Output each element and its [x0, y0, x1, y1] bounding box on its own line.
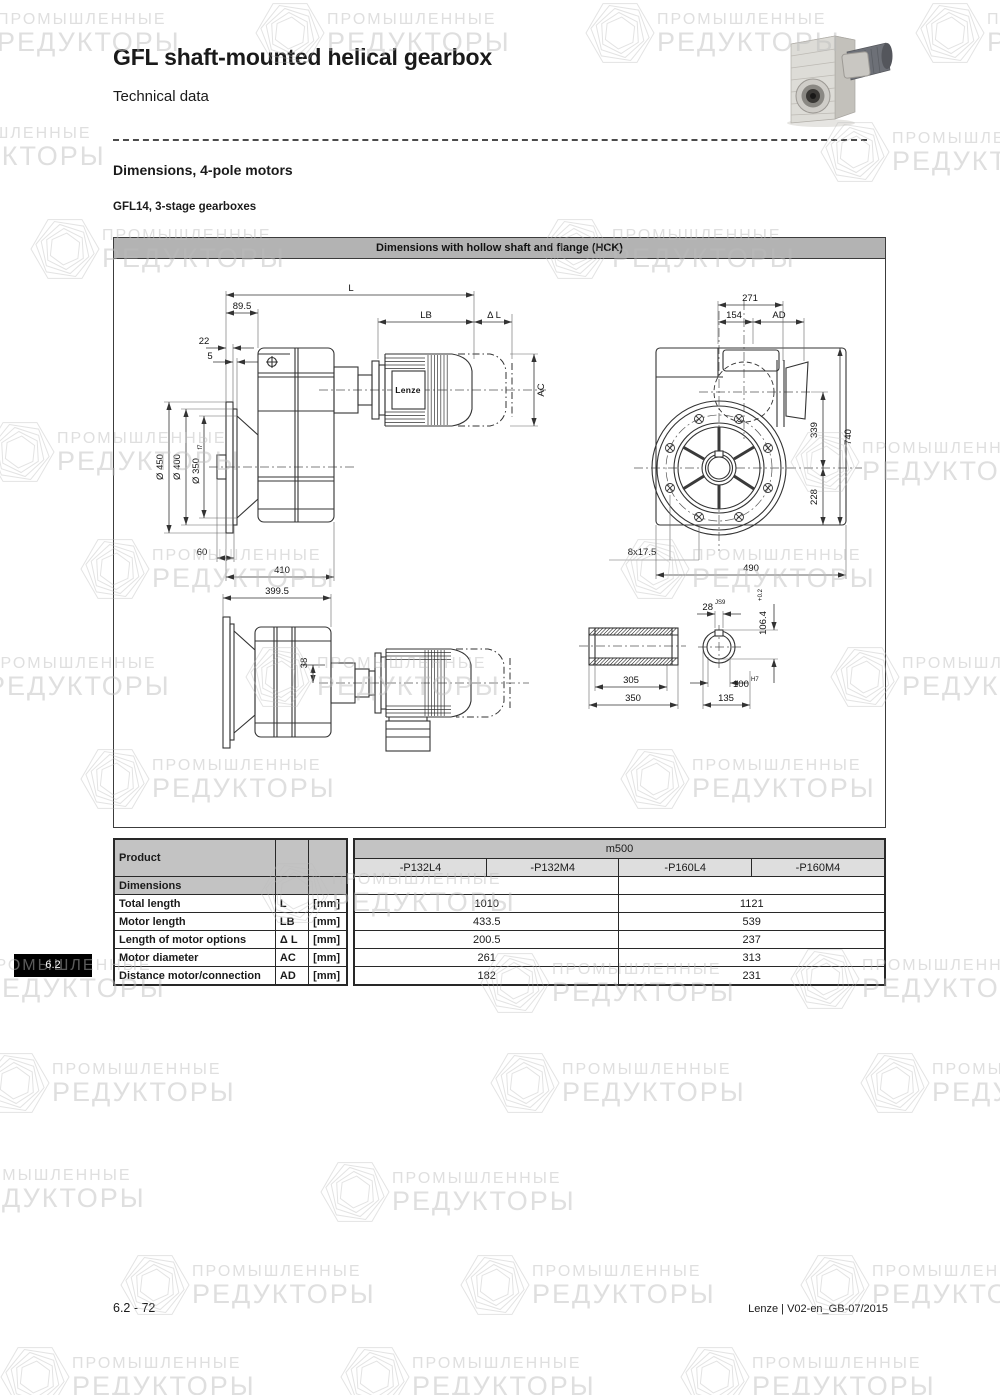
empty-cell — [275, 839, 308, 877]
page-subtitle: Technical data — [113, 88, 209, 105]
dashed-divider — [113, 139, 867, 141]
watermark: ПРОМЫШЛЕННЫЕРЕДУКТОРЫ — [0, 110, 106, 184]
table-row: -P132L4 -P132M4 -P160L4 -P160M4 — [354, 859, 885, 877]
dim-AC: AC — [536, 383, 547, 396]
value-cell: 1121 — [619, 895, 885, 913]
watermark: ПРОМЫШЛЕННЫЕРЕДУКТОРЫ — [340, 1340, 596, 1395]
row-label: Motor diameter — [114, 949, 275, 967]
col-header: -P132L4 — [354, 859, 486, 877]
table-row: 1010 1121 — [354, 895, 885, 913]
figure-box: Dimensions with hollow shaft and flange … — [113, 237, 886, 828]
dim-339: 339 — [809, 422, 820, 438]
dim-60: 60 — [197, 547, 208, 558]
dim-5: 5 — [207, 351, 212, 362]
col-header: -P160L4 — [619, 859, 751, 877]
dim-305: 305 — [623, 675, 639, 686]
row-unit: [mm] — [309, 949, 347, 967]
value-cell: 261 — [354, 949, 619, 967]
row-symbol: LB — [275, 913, 308, 931]
dim-dia450: Ø 450 — [155, 454, 166, 480]
row-symbol: AD — [275, 967, 308, 986]
watermark: ПРОМЫШЛЕННЫЕРЕДУКТОРЫ — [0, 1340, 256, 1395]
product-header-cell: Product — [114, 839, 275, 877]
dim-490: 490 — [743, 563, 759, 574]
table-row: Dimensions — [114, 877, 347, 895]
dim-350: 350 — [625, 693, 641, 704]
watermark: ПРОМЫШЛЕННЫЕРЕДУКТОРЫ — [120, 1248, 376, 1322]
value-cell: 313 — [619, 949, 885, 967]
table-row: 182 231 — [354, 967, 885, 986]
footer-page-number: 6.2 - 72 — [113, 1301, 155, 1315]
empty-cell — [619, 877, 885, 895]
dim-L: L — [348, 283, 353, 294]
dim-dia350: Ø 350 — [191, 458, 202, 484]
table-row: Motor diameter AC [mm] — [114, 949, 347, 967]
watermark: ПРОМЫШЛЕННЫЕРЕДУКТОРЫ — [915, 0, 1000, 70]
technical-drawing: L 89.5 LB Δ L 22 5 Ø 450 Ø 400 Ø 350 f7 … — [114, 259, 885, 827]
row-unit: [mm] — [309, 895, 347, 913]
row-label: Motor length — [114, 913, 275, 931]
empty-cell — [309, 839, 347, 877]
view-front — [652, 348, 846, 535]
col-header: -P160M4 — [751, 859, 885, 877]
motor-brand-label: Lenze — [395, 385, 421, 395]
subsection-heading: GFL14, 3-stage gearboxes — [113, 201, 256, 213]
dim-154: 154 — [726, 310, 742, 321]
dim-271: 271 — [742, 293, 758, 304]
figure-caption: Dimensions with hollow shaft and flange … — [114, 238, 885, 259]
dim-410: 410 — [274, 565, 290, 576]
table-row: Distance motor/connection AD [mm] — [114, 967, 347, 986]
section-label-cell: Dimensions — [114, 877, 275, 895]
dim-100: 100 — [733, 679, 749, 690]
dim-bolt-holes: 8x17.5 — [628, 547, 657, 558]
table-row: Total length L [mm] — [114, 895, 347, 913]
chapter-side-tab: 6.2 — [14, 954, 92, 977]
row-unit: [mm] — [309, 967, 347, 986]
watermark: ПРОМЫШЛЕННЫЕРЕДУКТОРЫ — [0, 1152, 146, 1226]
value-cell: 433.5 — [354, 913, 619, 931]
table-left-block: Product Dimensions Total length L [mm] M… — [113, 838, 348, 986]
dim-dia350-tol: f7 — [198, 444, 204, 450]
dim-89-5: 89.5 — [233, 301, 252, 312]
table-row: 433.5 539 — [354, 913, 885, 931]
table-row: Length of motor options Δ L [mm] — [114, 931, 347, 949]
watermark: ПРОМЫШЛЕННЫЕРЕДУКТОРЫ — [0, 1046, 236, 1120]
product-photo — [783, 22, 901, 133]
table-row: Motor length LB [mm] — [114, 913, 347, 931]
value-cell: 182 — [354, 967, 619, 986]
value-cell: 231 — [619, 967, 885, 986]
col-header: -P132M4 — [486, 859, 618, 877]
row-label: Distance motor/connection — [114, 967, 275, 986]
table-row: 200.5 237 — [354, 931, 885, 949]
dim-100-tol: H7 — [751, 677, 759, 683]
watermark: ПРОМЫШЛЕННЫЕРЕДУКТОРЫ — [460, 1248, 716, 1322]
footer-version: Lenze | V02-en_GB-07/2015 — [748, 1303, 888, 1315]
value-cell: 200.5 — [354, 931, 619, 949]
section-heading: Dimensions, 4-pole motors — [113, 162, 293, 178]
dim-28: 28 — [702, 602, 713, 613]
row-label: Length of motor options — [114, 931, 275, 949]
value-cell: 1010 — [354, 895, 619, 913]
dim-740: 740 — [843, 429, 854, 445]
row-symbol: AC — [275, 949, 308, 967]
row-unit: [mm] — [309, 931, 347, 949]
dim-AD: AD — [772, 310, 785, 321]
dim-106-4: 106.4 — [758, 611, 769, 635]
document-page: GFL shaft-mounted helical gearbox Techni… — [0, 0, 1000, 1395]
dim-dia400: Ø 400 — [172, 454, 183, 480]
table-value-block: m500 -P132L4 -P132M4 -P160L4 -P160M4 101… — [353, 838, 886, 986]
dim-LB: LB — [420, 310, 432, 321]
value-cell: 237 — [619, 931, 885, 949]
row-label: Total length — [114, 895, 275, 913]
watermark: ПРОМЫШЛЕННЫЕРЕДУКТОРЫ — [320, 1155, 576, 1229]
table-row: m500 — [354, 839, 885, 859]
dimensions-table: Product Dimensions Total length L [mm] M… — [113, 838, 886, 986]
dim-delta-L: Δ L — [487, 310, 501, 321]
detail-hollow-shaft — [589, 628, 735, 665]
watermark: ПРОМЫШЛЕННЫЕРЕДУКТОРЫ — [490, 1046, 746, 1120]
dim-22: 22 — [199, 336, 210, 347]
empty-cell — [354, 877, 619, 895]
value-cell: 539 — [619, 913, 885, 931]
page-title: GFL shaft-mounted helical gearbox — [113, 44, 492, 71]
dim-135: 135 — [718, 693, 734, 704]
row-symbol: L — [275, 895, 308, 913]
dim-106-4-tol: +0.2 — [758, 588, 764, 601]
table-row — [354, 877, 885, 895]
view-side — [217, 348, 472, 533]
dim-28-tol: JS9 — [715, 600, 726, 606]
watermark: ПРОМЫШЛЕННЫЕРЕДУКТОРЫ — [680, 1340, 936, 1395]
watermark: ПРОМЫШЛЕННЫЕРЕДУКТОРЫ — [860, 1046, 1000, 1120]
group-header-cell: m500 — [354, 839, 885, 859]
dim-228: 228 — [809, 489, 820, 505]
row-symbol: Δ L — [275, 931, 308, 949]
dim-38: 38 — [299, 658, 310, 669]
row-unit: [mm] — [309, 913, 347, 931]
dim-399-5: 399.5 — [265, 586, 289, 597]
table-row: 261 313 — [354, 949, 885, 967]
view-bottom — [223, 617, 471, 751]
